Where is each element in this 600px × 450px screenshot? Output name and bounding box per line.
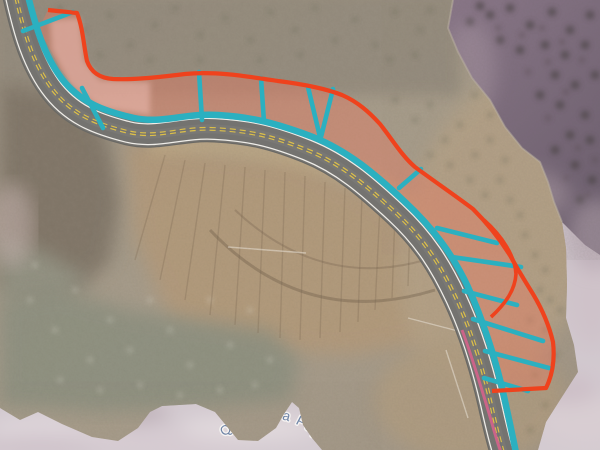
- aerial-map-canvas[interactable]: Quebrada Papu: [0, 0, 600, 450]
- map-viewport[interactable]: Quebrada Papu: [0, 0, 600, 450]
